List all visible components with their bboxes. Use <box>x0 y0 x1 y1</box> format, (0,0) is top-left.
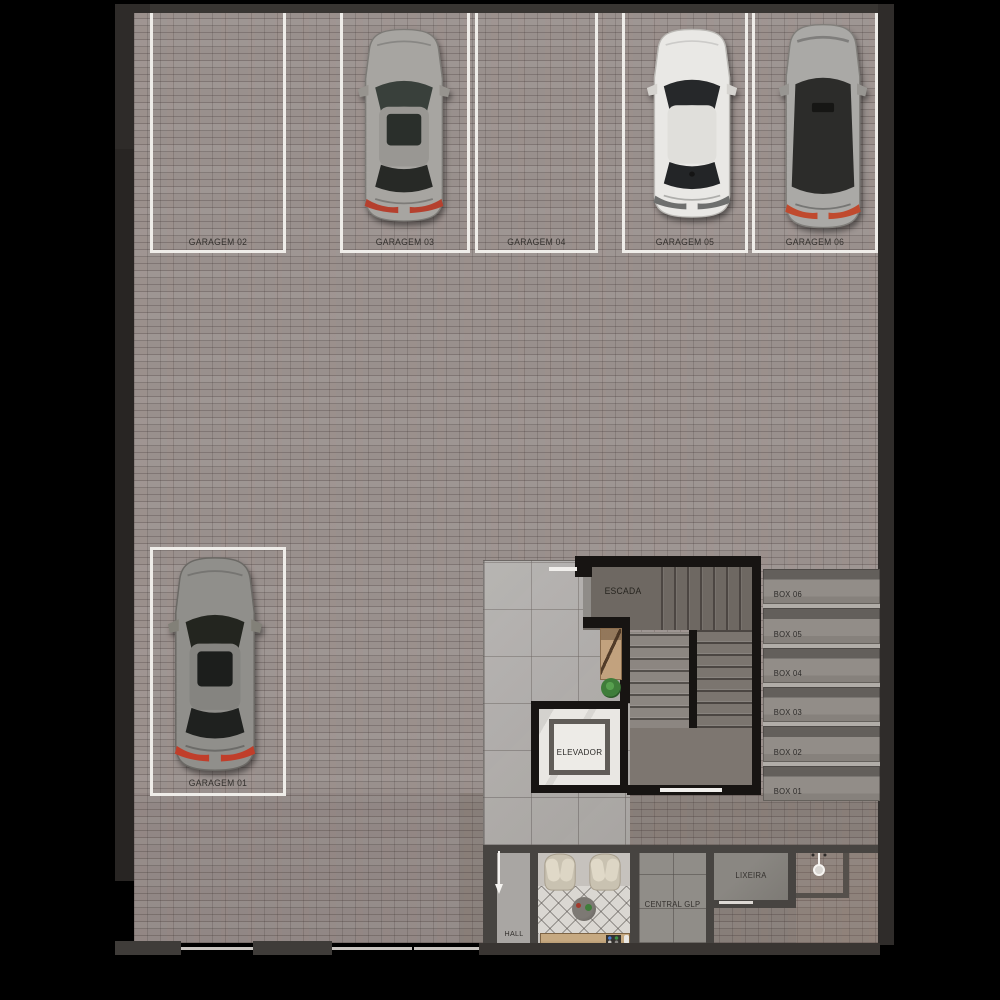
table-plant <box>585 904 592 911</box>
stairs-flight-right <box>697 630 752 728</box>
armchair <box>586 852 624 894</box>
gate-threshold-2 <box>332 947 412 950</box>
parking-stall-garagem-04: GARAGEM 04 <box>475 13 598 253</box>
storage-box-03: BOX 03 <box>763 687 880 722</box>
stairs-lower-landing <box>630 728 752 785</box>
stall-label: GARAGEM 04 <box>481 237 592 247</box>
glp-lixeira-wall <box>706 845 714 947</box>
parking-stall-garagem-02: GARAGEM 02 <box>150 13 286 253</box>
storage-box-04: BOX 04 <box>763 648 880 683</box>
car-garagem-03 <box>356 26 452 228</box>
box-label: BOX 01 <box>774 787 802 796</box>
stall-label: GARAGEM 02 <box>156 237 280 247</box>
plant <box>601 678 621 698</box>
stair-wall-top <box>575 556 760 567</box>
bottom-wall-block-1 <box>115 941 181 955</box>
stair-door-leaf <box>583 577 591 617</box>
stair-wall-corner <box>575 556 592 577</box>
lixeira-label: LIXEIRA <box>716 871 786 880</box>
table-decor-red <box>576 903 581 908</box>
stall-label: GARAGEM 01 <box>156 778 280 788</box>
stair-wall-right <box>752 556 761 795</box>
car-garagem-01 <box>166 554 264 778</box>
storage-box-02: BOX 02 <box>763 726 880 761</box>
lixeira-wall-right <box>788 845 796 908</box>
armchair <box>541 852 579 894</box>
yard-wall-right <box>843 853 849 898</box>
stall-label: GARAGEM 06 <box>758 237 872 247</box>
elevator-label: ELEVADOR <box>541 747 618 757</box>
central-glp-label: CENTRAL GLP <box>633 900 712 909</box>
stair-wall-mid-horizontal <box>583 617 630 628</box>
box-label: BOX 06 <box>774 590 802 599</box>
box-label: BOX 05 <box>774 630 802 639</box>
bottom-wall-block-2 <box>253 941 332 955</box>
box-label: BOX 04 <box>774 669 802 678</box>
storage-box-06: BOX 06 <box>763 569 880 604</box>
coffee-table <box>572 897 596 921</box>
stair-door-threshold <box>549 567 577 571</box>
storage-box-column: BOX 06 BOX 05 BOX 04 BOX 03 BOX 02 BOX 0… <box>763 569 880 801</box>
outdoor-yard-tint <box>796 853 878 943</box>
lounge-glp-wall <box>630 845 639 947</box>
gate-threshold-3 <box>414 947 479 950</box>
bottom-wall-rooms <box>479 943 880 955</box>
gate-threshold-1 <box>181 947 253 950</box>
box-label: BOX 02 <box>774 748 802 757</box>
entrance-arrow-icon <box>494 849 504 895</box>
stall-label: GARAGEM 03 <box>346 237 464 247</box>
stairs-flight-left <box>630 632 689 732</box>
storage-box-05: BOX 05 <box>763 608 880 643</box>
box-label: BOX 03 <box>774 708 802 717</box>
stairs-label: ESCADA <box>585 586 661 596</box>
floor-shade-bottom-left <box>134 793 460 943</box>
water-point-icon <box>810 851 828 877</box>
car-garagem-06 <box>777 21 869 235</box>
stairs-divider-wall <box>689 630 697 730</box>
central-glp-floor <box>639 853 706 943</box>
hall-label: HALL <box>496 929 532 938</box>
yard-wall-bottom <box>796 893 849 898</box>
stair-bottom-threshold <box>660 788 722 792</box>
car-garagem-05 <box>645 26 739 224</box>
storage-box-01: BOX 01 <box>763 766 880 801</box>
wood-door <box>600 628 622 680</box>
stall-label: GARAGEM 05 <box>628 237 742 247</box>
garage-floor-plan: GARAGEM 02 GARAGEM 03 GARAGEM 04 GARAGEM… <box>0 0 1000 1000</box>
wall-right <box>878 4 894 945</box>
lixeira-threshold <box>719 901 753 904</box>
hall-lounge-wall <box>530 845 538 947</box>
